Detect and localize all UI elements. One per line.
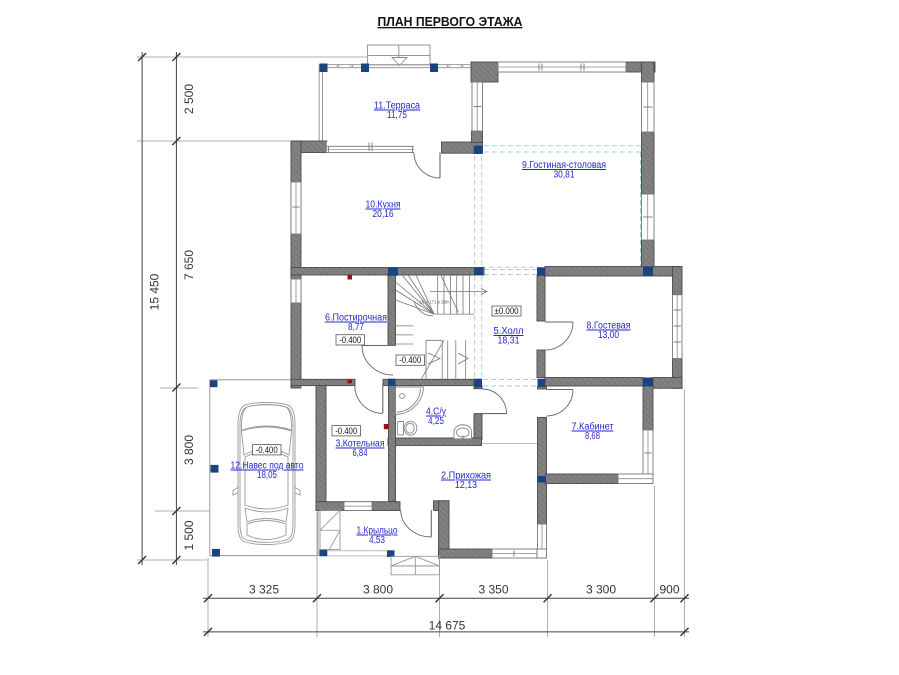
svg-text:11,75: 11,75 [387, 110, 407, 121]
svg-text:-0.400: -0.400 [256, 445, 278, 456]
svg-text:2 500: 2 500 [182, 84, 196, 114]
svg-text:18,31: 18,31 [498, 335, 520, 346]
svg-text:30,81: 30,81 [554, 169, 575, 180]
svg-text:7 650: 7 650 [182, 250, 196, 280]
svg-text:13,00: 13,00 [598, 330, 619, 341]
svg-text:8,77: 8,77 [348, 322, 364, 333]
svg-text:12,13: 12,13 [455, 480, 477, 491]
svg-text:19 x 171 x 288: 19 x 171 x 288 [419, 300, 449, 305]
svg-text:4,53: 4,53 [369, 535, 385, 546]
svg-text:14 675: 14 675 [429, 618, 466, 632]
svg-text:18,05: 18,05 [257, 470, 277, 481]
svg-text:-0.400: -0.400 [335, 426, 357, 437]
svg-text:3 300: 3 300 [586, 583, 616, 597]
svg-text:-0.400: -0.400 [399, 355, 421, 366]
svg-text:3 350: 3 350 [478, 583, 508, 597]
svg-text:3 325: 3 325 [249, 583, 279, 597]
svg-text:20,16: 20,16 [373, 209, 394, 220]
svg-text:ПЛАН ПЕРВОГО ЭТАЖА: ПЛАН ПЕРВОГО ЭТАЖА [378, 14, 524, 29]
svg-text:900: 900 [659, 583, 679, 597]
svg-text:4,25: 4,25 [428, 416, 444, 427]
svg-text:±0.000: ±0.000 [495, 306, 519, 317]
svg-text:6,84: 6,84 [353, 448, 368, 459]
svg-text:15 450: 15 450 [148, 273, 162, 310]
svg-text:8,68: 8,68 [585, 431, 600, 442]
svg-text:3 800: 3 800 [363, 583, 393, 597]
svg-text:1 500: 1 500 [182, 520, 196, 550]
svg-text:3 800: 3 800 [182, 435, 196, 465]
svg-text:-0.400: -0.400 [339, 335, 361, 346]
